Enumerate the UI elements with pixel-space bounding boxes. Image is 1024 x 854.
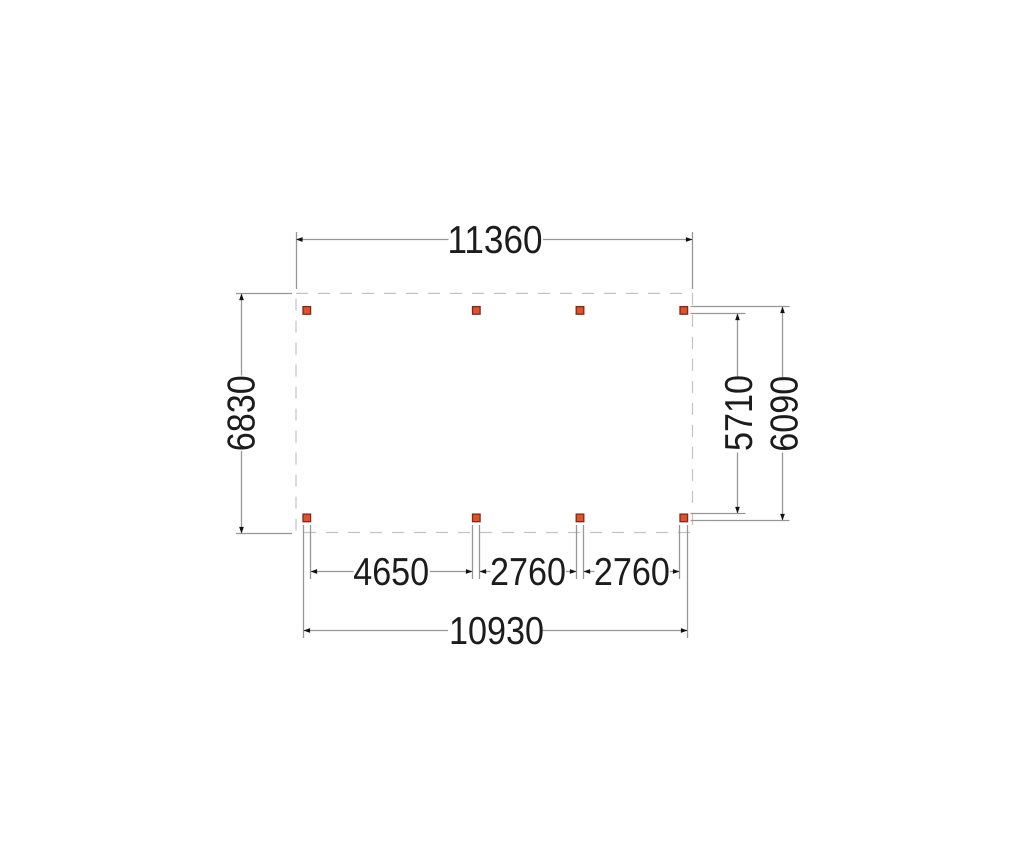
svg-text:6830: 6830 (221, 375, 264, 451)
svg-text:2760: 2760 (594, 551, 670, 594)
svg-text:4650: 4650 (353, 551, 429, 594)
svg-text:6090: 6090 (763, 376, 806, 452)
svg-text:5710: 5710 (718, 375, 761, 451)
svg-text:11360: 11360 (448, 219, 543, 262)
svg-text:10930: 10930 (449, 610, 544, 653)
svg-text:2760: 2760 (490, 551, 566, 594)
